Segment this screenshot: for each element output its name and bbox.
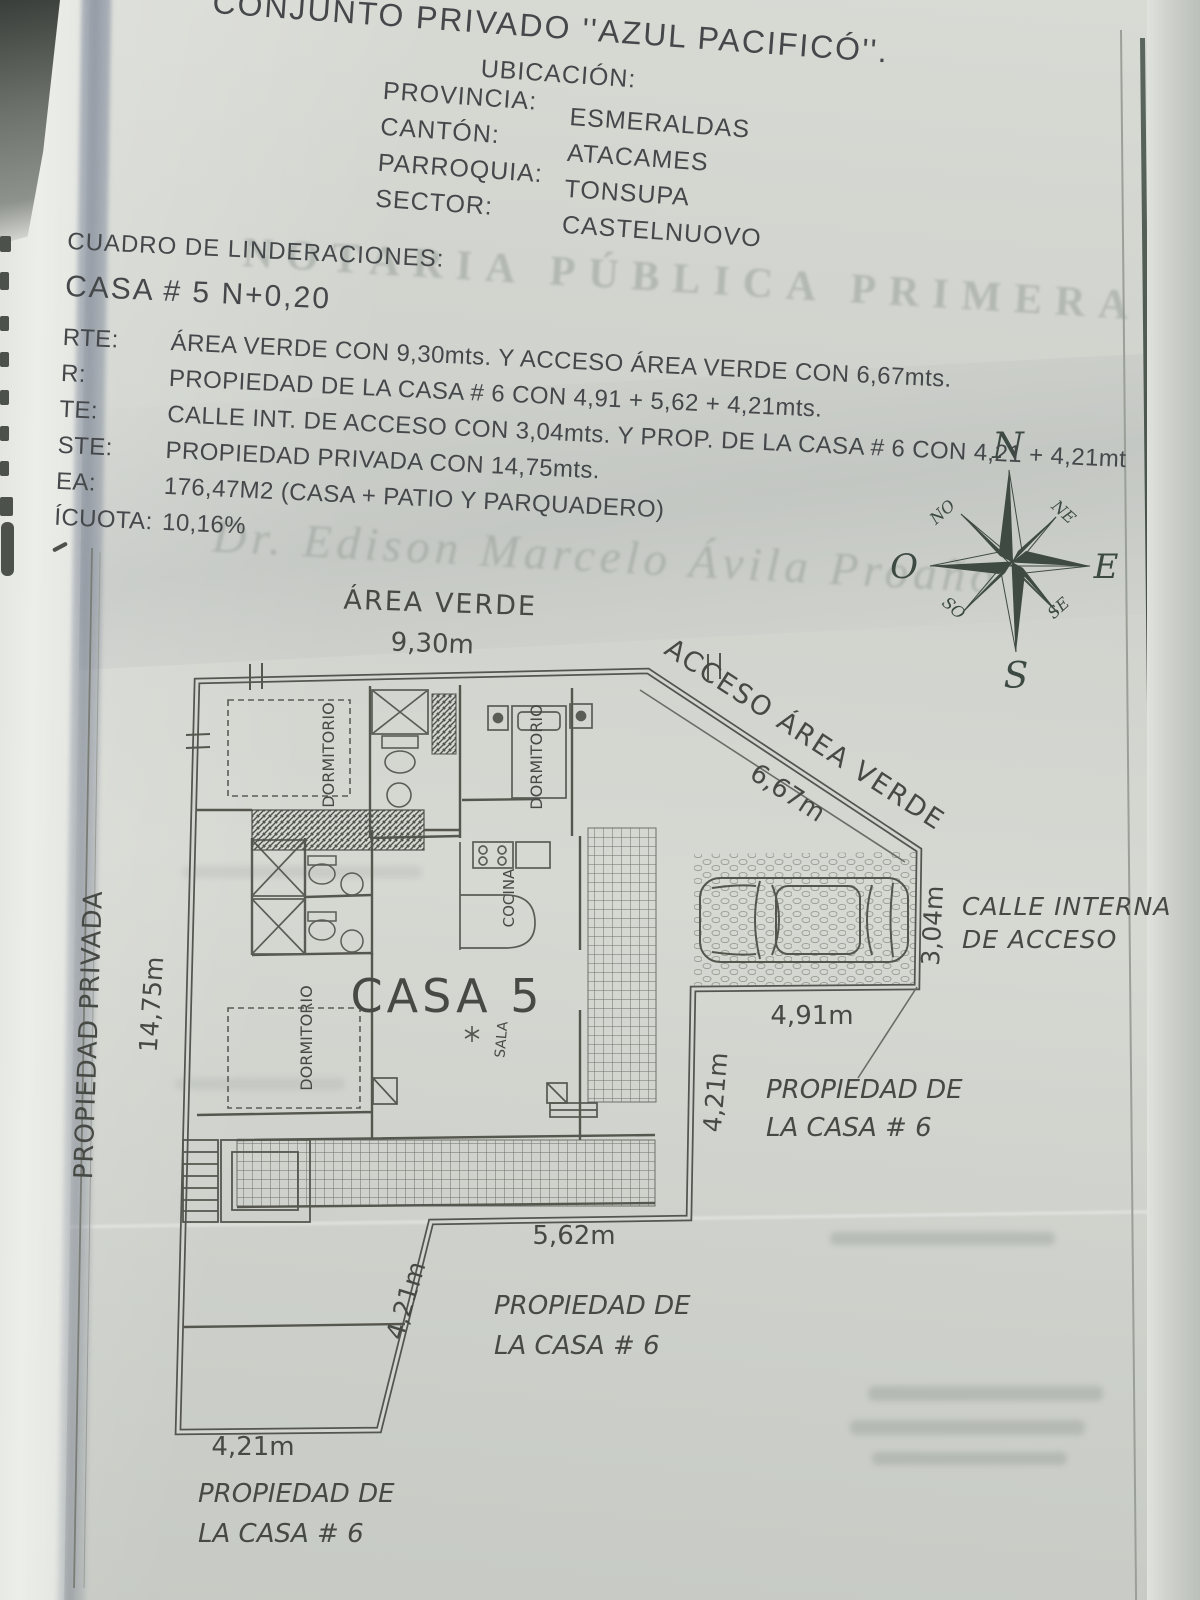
- label-propiedad-south-2: LA CASA # 6: [494, 1331, 660, 1361]
- toilet-bath1: [382, 736, 418, 807]
- label-propiedad-east-1: PROPIEDAD DE: [766, 1075, 963, 1105]
- wardrobe-hatch: [252, 810, 424, 850]
- parking-pavement: [694, 852, 916, 988]
- label-propiedad-sw-2: LA CASA # 6: [198, 1519, 364, 1549]
- location-block: UBICACIÓN: PROVINCIA: ESMERALDAS CANTÓN:…: [374, 48, 773, 248]
- scanned-deed-page: NOTARIA PÚBLICA PRIMERA Dr. Edison Marce…: [0, 0, 1200, 1600]
- lindero-label: ÍCUOTA:: [53, 500, 163, 541]
- wall-hatch-block: [432, 694, 456, 754]
- lindero-label: EA:: [55, 464, 165, 505]
- label-propiedad-privada: PROPIEDAD PRIVADA: [69, 890, 109, 1180]
- dim-6-67: 6,67m: [744, 758, 830, 828]
- closet-x-middle: [252, 840, 305, 954]
- dim-5-62: 5,62m: [532, 1221, 615, 1251]
- lindero-label: STE:: [57, 428, 167, 469]
- staircase: [183, 1140, 218, 1222]
- terrace-hatch-south: [237, 1140, 655, 1206]
- label-propiedad-sw-1: PROPIEDAD DE: [198, 1479, 395, 1509]
- label-area-verde: ÁREA VERDE: [343, 584, 537, 623]
- bed-dormitorio-3: [228, 1008, 360, 1108]
- label-calle-interna: CALLE INTERNA: [962, 892, 1171, 921]
- dim-9-30: 9,30m: [390, 628, 474, 661]
- entry-steps: [550, 1103, 597, 1117]
- dim-4-21-sw: 4,21m: [211, 1432, 294, 1462]
- dim-14-75: 14,75m: [134, 956, 170, 1054]
- lindero-text: 10,16%: [161, 505, 246, 545]
- dim-4-91: 4,91m: [770, 1001, 853, 1031]
- label-de-acceso: DE ACCESO: [962, 925, 1117, 954]
- label-dormitorio-3: DORMITORIO: [297, 985, 316, 1090]
- label-propiedad-east-2: LA CASA # 6: [766, 1113, 932, 1143]
- street-edge-line: [858, 987, 917, 1078]
- dim-3-04: 3,04m: [916, 885, 949, 966]
- label-dormitorio-1: DORMITORIO: [319, 702, 338, 807]
- lindero-label: R:: [60, 356, 170, 397]
- label-cocina: COCINA: [500, 868, 518, 927]
- label-casa-5: CASA 5: [351, 969, 544, 1023]
- compass-se: SE: [1044, 593, 1074, 622]
- dim-4-21-south: 4,21m: [380, 1258, 431, 1343]
- terrace-hatch-east: [588, 828, 656, 1102]
- label-propiedad-south-1: PROPIEDAD DE: [494, 1291, 691, 1321]
- closet-x-top: [372, 690, 428, 734]
- compass-s: S: [1004, 656, 1029, 697]
- label-sala: SALA: [492, 1020, 511, 1058]
- door-marks: [373, 1078, 567, 1104]
- compass-so: SO: [938, 593, 969, 623]
- bathroom-fixtures: [308, 856, 363, 952]
- plant-icon: [465, 1026, 479, 1042]
- lindero-label: RTE:: [62, 320, 172, 361]
- lindero-label: TE:: [59, 392, 169, 433]
- dim-4-21-east: 4,21m: [698, 1051, 734, 1133]
- label-dormitorio-2: DORMITORIO: [527, 704, 546, 809]
- linderos-block: CUADRO DE LINDERACIONES: CASA # 5 N+0,20…: [53, 228, 1166, 587]
